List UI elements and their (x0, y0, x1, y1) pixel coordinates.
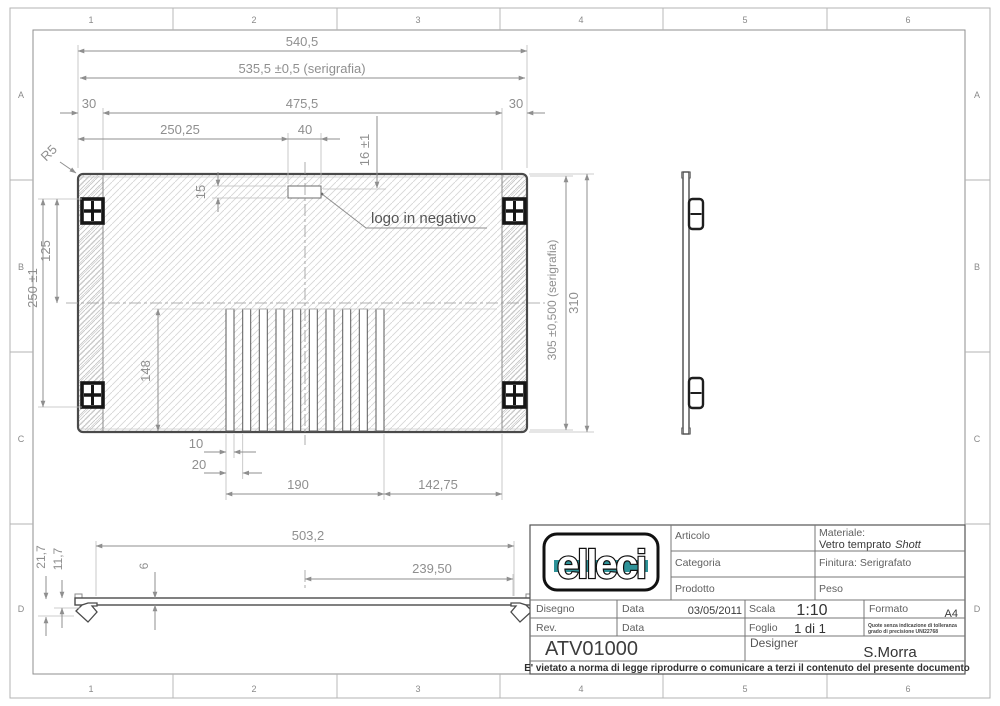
slot (276, 309, 284, 431)
zone-col-label: 1 (88, 15, 93, 25)
zone-col-label: 1 (88, 684, 93, 694)
dim-slot-pitch: 20 (192, 457, 206, 472)
zone-col-label: 3 (415, 15, 420, 25)
drawing-sheet: 1 2 3 4 5 6 1 2 3 4 5 6 A B C D A B C D (0, 0, 1000, 706)
slot (293, 309, 301, 431)
slot (343, 309, 351, 431)
front-view: logo in negativo 540,5 535,5 ±0,5 (serig… (25, 34, 594, 500)
zone-row-label: D (974, 604, 981, 614)
tolerance-note-line2: grado di precisione UNI22768 (868, 629, 938, 635)
dim-slot-group-width: 190 (287, 477, 309, 492)
profile-view: 503,2 239,50 21,7 11,7 6 (34, 528, 533, 636)
zone-col-label: 6 (905, 684, 910, 694)
drawing-code: ATV01000 (545, 638, 638, 660)
zone-row-label: C (974, 434, 981, 444)
materiale-value-text: Vetro temprato (819, 539, 891, 551)
materiale-value-brand: Shott (895, 539, 922, 551)
legal-footer: E' vietato a norma di legge riprodurre o… (524, 663, 969, 674)
corner-pad-bottom-left (82, 383, 103, 407)
dim-logo-height: 15 (193, 185, 208, 199)
corner-pad-top-right (504, 199, 525, 223)
dim-slot-width: 10 (189, 436, 203, 451)
slot (359, 309, 367, 431)
field-foglio-value: 1 di 1 (794, 621, 826, 636)
profile-right-hook (511, 603, 532, 622)
zone-row-label: B (974, 262, 980, 272)
side-pad-top (689, 199, 703, 229)
leader-dot (321, 193, 324, 196)
field-formato-value: A4 (945, 608, 958, 620)
title-block: elleci Articolo Categoria Prodotto Mater… (524, 525, 969, 674)
corner-pad-bottom-right (504, 383, 525, 407)
company-logo: elleci (544, 534, 658, 590)
field-rev: Rev. (536, 622, 557, 634)
field-designer: Designer (750, 636, 798, 650)
field-data2: Data (622, 622, 644, 634)
field-prodotto: Prodotto (675, 583, 715, 595)
dim-pad-half-span: 125 (38, 240, 53, 262)
profile-dimensions: 503,2 239,50 21,7 11,7 6 (34, 528, 514, 636)
zone-col-label: 4 (578, 684, 583, 694)
dim-serigraphy-height: 305 ±0,500 (serigrafia) (545, 240, 559, 361)
dim-hook-height: 21,7 (34, 545, 48, 569)
profile-left-hook (76, 603, 97, 622)
dim-total-height: 310 (566, 292, 581, 314)
dim-left-margin: 30 (82, 96, 96, 111)
zone-col-label: 4 (578, 15, 583, 25)
dim-logo-width: 40 (298, 122, 312, 137)
dim-slot-to-edge: 142,75 (418, 477, 458, 492)
slot (259, 309, 267, 431)
zone-row-label: A (974, 90, 980, 100)
dim-inner-width: 475,5 (286, 96, 319, 111)
dim-slot-height: 148 (138, 360, 153, 382)
field-materiale-label: Materiale: (819, 527, 865, 539)
zone-col-label: 2 (251, 684, 256, 694)
zone-col-label: 6 (905, 15, 910, 25)
field-designer-value: S.Morra (863, 644, 917, 661)
logo-window (288, 186, 321, 198)
field-materiale-value: Vetro tempratoShott (819, 539, 922, 551)
dim-thickness: 6 (137, 562, 151, 569)
dim-corner-radius: R5 (38, 142, 60, 164)
field-finitura: Finitura: Serigrafato (819, 557, 911, 569)
slot (376, 309, 384, 431)
field-foglio: Foglio (749, 622, 778, 634)
slot (226, 309, 234, 431)
corner-pad-top-left (82, 199, 103, 223)
field-data1: Data (622, 603, 644, 615)
side-view (682, 172, 704, 434)
field-disegno: Disegno (536, 603, 575, 615)
zone-col-label: 5 (742, 684, 747, 694)
zone-col-label: 5 (742, 15, 747, 25)
zone-row-label: C (18, 434, 25, 444)
field-scala-value: 1:10 (796, 602, 827, 619)
zone-row-label: A (18, 90, 24, 100)
dim-hook-mid: 11,7 (51, 547, 65, 570)
dim-logo-top-offset: 16 ±1 (357, 134, 372, 166)
field-formato: Formato (869, 603, 908, 615)
dim-profile-length: 503,2 (292, 528, 325, 543)
field-peso: Peso (819, 583, 843, 595)
zone-row-label: D (18, 604, 25, 614)
dim-profile-half-length: 239,50 (412, 561, 452, 576)
field-articolo: Articolo (675, 530, 710, 542)
zone-col-label: 3 (415, 684, 420, 694)
dim-logo-center-offset: 250,25 (160, 122, 200, 137)
dim-total-width: 540,5 (286, 34, 319, 49)
side-pad-bottom (689, 378, 703, 408)
drawing-canvas: 1 2 3 4 5 6 1 2 3 4 5 6 A B C D A B C D (0, 0, 1000, 706)
field-scala: Scala (749, 603, 775, 615)
field-categoria: Categoria (675, 557, 721, 569)
profile-bar (75, 598, 533, 605)
field-data1-value: 03/05/2011 (688, 605, 742, 617)
slot (326, 309, 334, 431)
zone-row-label: B (18, 262, 24, 272)
logo-callout-text: logo in negativo (371, 210, 476, 227)
slot (309, 309, 317, 431)
dim-serigraphy-width: 535,5 ±0,5 (serigrafia) (238, 61, 365, 76)
slot (243, 309, 251, 431)
logo-text: elleci (557, 543, 645, 587)
zone-col-label: 2 (251, 15, 256, 25)
dim-right-margin: 30 (509, 96, 523, 111)
dim-pad-span: 250 ±1 (25, 268, 40, 308)
